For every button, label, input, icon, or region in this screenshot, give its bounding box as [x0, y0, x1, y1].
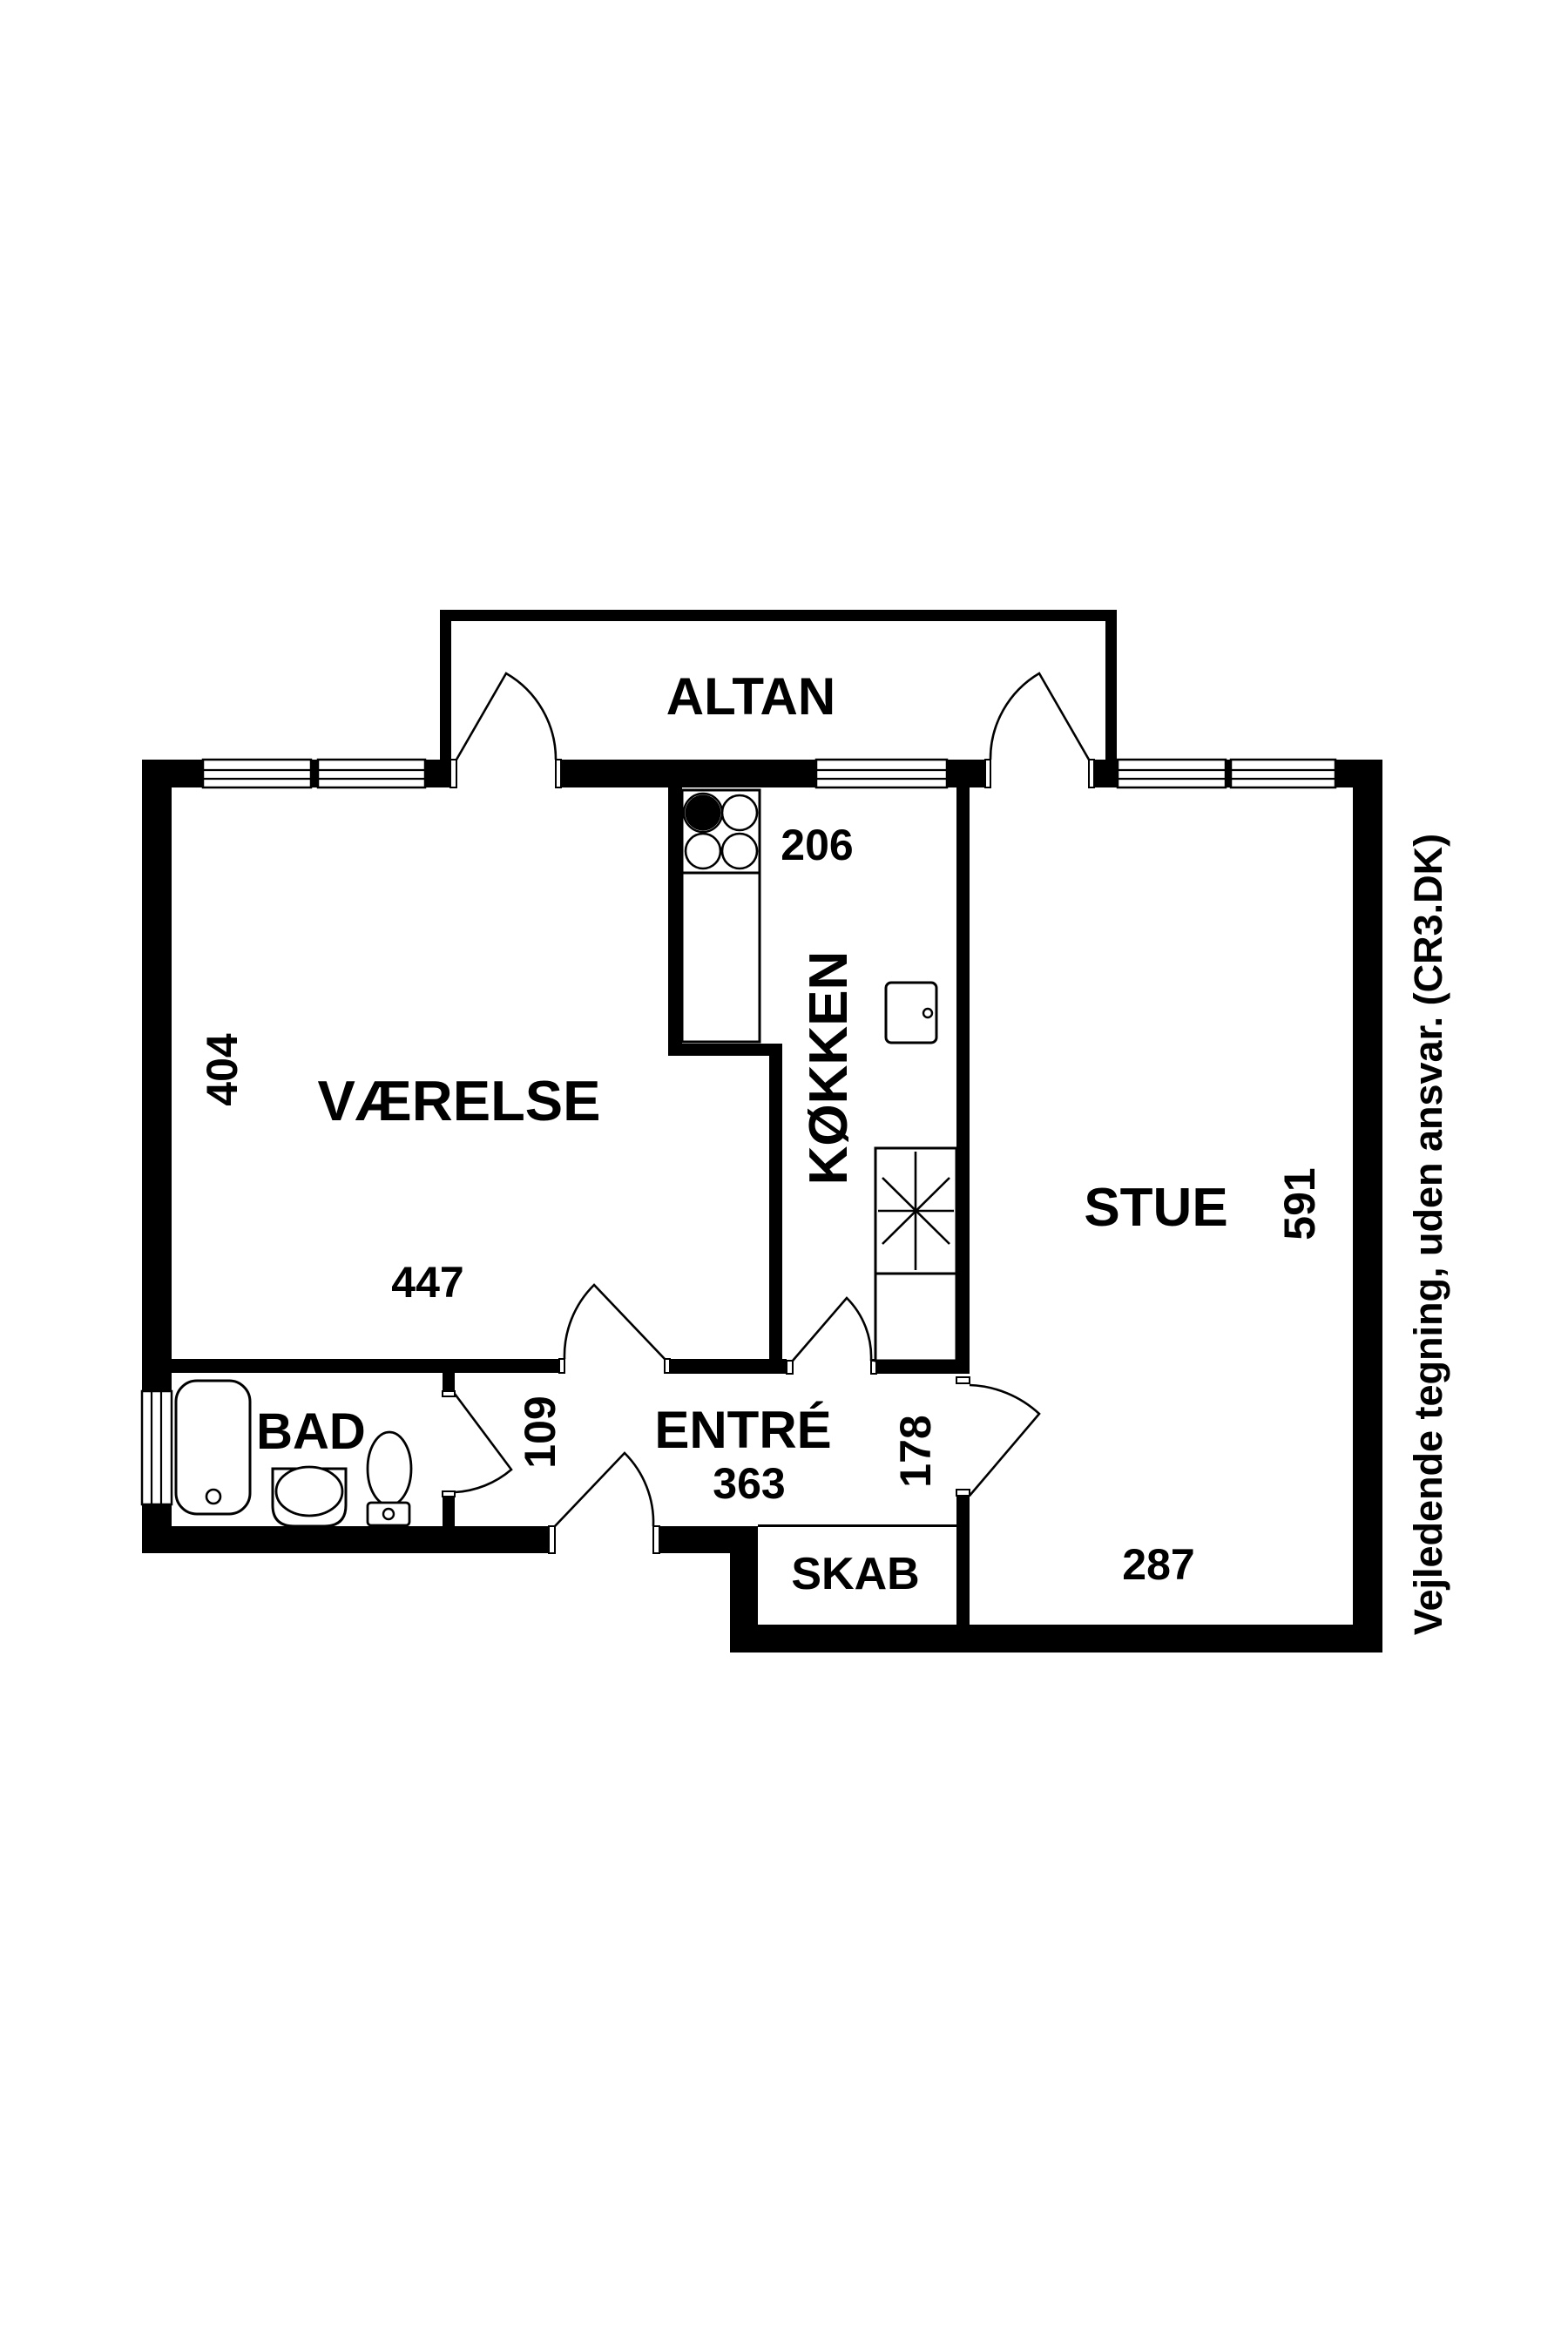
window-icon — [203, 760, 311, 787]
kitchen-sink-icon — [875, 1148, 956, 1274]
bad-door-icon — [455, 1394, 511, 1492]
label-entre: ENTRÉ — [654, 1401, 831, 1459]
dim-stue-width: 287 — [1122, 1540, 1194, 1589]
label-bad: BAD — [256, 1403, 366, 1460]
label-skab: SKAB — [791, 1549, 919, 1599]
label-koekken: KØKKEN — [799, 951, 859, 1186]
dim-bad-door: 109 — [516, 1396, 564, 1468]
dim-koekken-width: 206 — [781, 821, 853, 869]
dim-stue-depth: 591 — [1275, 1167, 1324, 1240]
label-vaerelse: VÆRELSE — [317, 1069, 600, 1132]
floorplan-page: ALTAN VÆRELSE KØKKEN STUE BAD ENTRÉ SKAB… — [0, 0, 1568, 2352]
balcony-door-right-icon — [990, 673, 1089, 760]
label-altan: ALTAN — [666, 667, 835, 726]
dim-vaerelse-width: 447 — [391, 1258, 463, 1307]
vaerelse-door-icon — [564, 1285, 665, 1359]
koekken-door-icon — [793, 1298, 871, 1361]
window-icon — [142, 1391, 172, 1504]
window-icon — [816, 760, 947, 787]
kitchen-counter — [682, 873, 760, 1042]
balcony-door-left-icon — [456, 673, 556, 760]
toilet-icon — [368, 1432, 411, 1525]
dim-entre-depth: 178 — [891, 1415, 940, 1487]
kitchen-counter — [875, 1274, 956, 1361]
front-door-icon — [555, 1453, 653, 1526]
window-icon — [318, 760, 425, 787]
label-stue: STUE — [1084, 1178, 1227, 1238]
bathtub-icon — [176, 1381, 250, 1514]
dim-entre-width: 363 — [713, 1459, 785, 1508]
disclaimer-text: Vejledende tegning, uden ansvar. (CR3.DK… — [1406, 834, 1450, 1635]
floorplan-drawing: ALTAN VÆRELSE KØKKEN STUE BAD ENTRÉ SKAB… — [0, 0, 1568, 2352]
stove-icon — [682, 790, 760, 873]
stue-door-icon — [970, 1385, 1039, 1496]
washbasin-icon — [273, 1467, 346, 1526]
fridge-icon — [886, 983, 936, 1043]
window-icon — [1118, 760, 1226, 787]
dim-vaerelse-depth: 404 — [198, 1033, 247, 1106]
window-icon — [1231, 760, 1335, 787]
